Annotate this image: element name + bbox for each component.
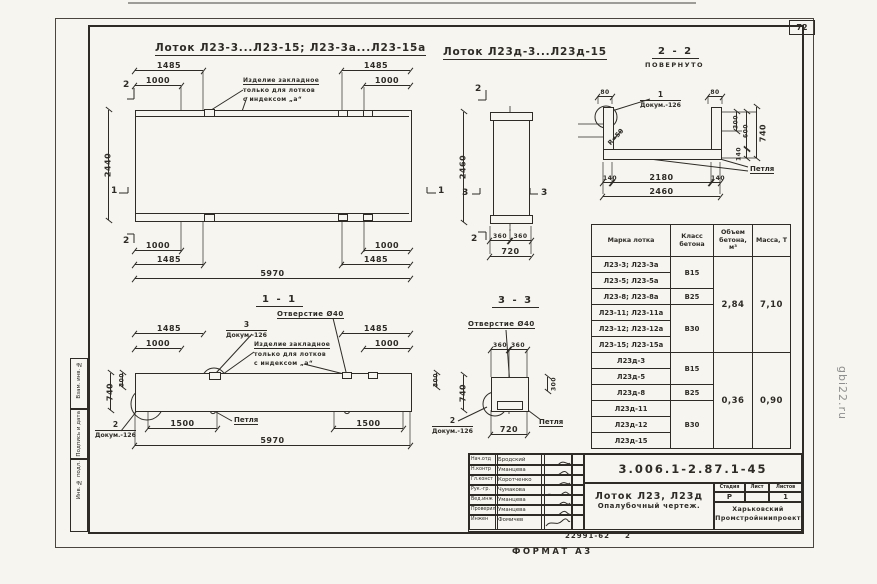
embed-plate [363, 110, 373, 117]
footer-sheet-number: 2 [625, 532, 631, 540]
dim-80: 80 [598, 96, 612, 97]
signer-role: Инжен [469, 514, 498, 530]
dim-1000: 1000 [364, 348, 410, 349]
dim-2180: 2180 [612, 182, 711, 183]
dim-360: 360 [509, 349, 527, 350]
callout-2-dokum: 2 Докум.-126 [95, 420, 136, 439]
callout-3-dokum: 3 Докум.-126 [226, 320, 267, 339]
margin-cell-podpis: Подпись и дата [70, 408, 88, 460]
section-2-2-sublabel: ПОВЕРНУТО [645, 61, 704, 69]
dim-300: 300 [436, 373, 437, 387]
sec33-loop-plate [497, 401, 523, 410]
dim-360: 360 [490, 240, 510, 241]
signature-cell [541, 514, 573, 530]
col-header-obyem: Объем бетона, м³ [714, 225, 753, 257]
dim-740: 740 [110, 373, 111, 410]
embed-plate [204, 109, 215, 117]
margin-cell-vzam: Взам. инв. № [70, 358, 88, 410]
section-mark-1: 1 [438, 186, 444, 196]
dim-1485: 1485 [342, 70, 410, 71]
dim-300: 300 [547, 377, 548, 391]
dim-1485: 1485 [342, 333, 410, 334]
dim-5970: 5970 [135, 445, 410, 446]
document-number: 3.006.1-2.87.1-45 [583, 454, 803, 484]
embed-plate [363, 214, 373, 221]
dim-720: 720 [490, 256, 531, 257]
callout-1-dokum: 1 Докум.-126 [640, 90, 681, 109]
dim-140: 140 [711, 182, 720, 183]
organization-cell: Харьковский Промстройниипроект [713, 501, 803, 530]
embed-plate [209, 372, 221, 380]
callout-2-dokum: 2 Докум.-126 [432, 416, 473, 435]
dim-1000: 1000 [364, 85, 410, 86]
product-subtitle: Опалубочный чертеж. [584, 502, 714, 510]
page-number-box: 72 [789, 20, 815, 35]
dim-360: 360 [510, 240, 531, 241]
scanned-drawing-page: { "page": { "number": "72", "watermark":… [0, 0, 877, 584]
table-row: Л23-3; Л23-3аВ152,847,10 [592, 257, 791, 273]
title-lotok-l23d: Лоток Л23д-3...Л23д-15 [443, 46, 607, 60]
end-view-top-cap [490, 112, 533, 121]
product-name-cell: Лоток Л23, Л23д Опалубочный чертеж. [583, 482, 715, 530]
dim-80: 80 [708, 96, 722, 97]
footer-doc-code: 22991-62 [565, 532, 610, 540]
section-mark-2: 2 [475, 84, 481, 94]
margin-cell-inv: Инв. № подл. [70, 458, 88, 532]
dim-600: 600 [746, 112, 747, 149]
section-mark-2: 2 [123, 236, 129, 246]
dim-1000: 1000 [364, 250, 410, 251]
dim-720: 720 [491, 434, 527, 435]
section-2-2-label: 2 - 2 [652, 46, 699, 59]
embed-plate [342, 372, 352, 379]
embed-plate [338, 214, 348, 221]
dim-2460: 2460 [603, 196, 720, 197]
embed-plate [368, 372, 378, 379]
end-view-bottom-cap [490, 215, 533, 224]
page-number: 72 [796, 23, 807, 32]
organization-line1: Харьковский [714, 505, 802, 514]
dim-5970: 5970 [135, 278, 410, 279]
section-mark-3: 3 [541, 188, 547, 198]
col-header-marka: Марка лотка [592, 225, 671, 257]
watermark-text: gbi22.ru [836, 366, 849, 420]
dim-1485: 1485 [135, 70, 203, 71]
table-header-row: Марка лотка Класс бетона Объем бетона, м… [592, 225, 791, 257]
dim-740: 740 [463, 375, 464, 410]
title-block: Нач.отд Бродский Н.контр Уманцева Гл.кон… [468, 453, 802, 532]
dim-1500: 1500 [148, 428, 217, 429]
section-mark-1: 1 [111, 186, 117, 196]
section-3-3-label: 3 - 3 [492, 295, 539, 308]
format-label: ФОРМАТ А3 [512, 547, 593, 557]
loop-label: Петля [539, 418, 563, 427]
loop-label: Петля [750, 165, 774, 174]
embed-plate [338, 110, 348, 117]
embed-note-2: Изделие закладное только для лотков с ин… [254, 340, 330, 369]
section-1-1-label: 1 - 1 [256, 294, 303, 307]
dim-1500: 1500 [334, 428, 403, 429]
dim-300: 300 [736, 112, 737, 131]
hole-label: Отверстие Ø40 [468, 320, 535, 329]
plan-view-body [135, 110, 412, 222]
dim-1000: 1000 [135, 348, 181, 349]
dim-2460: 2460 [463, 112, 464, 222]
dim-300: 300 [122, 373, 123, 387]
section-mark-2: 2 [471, 234, 477, 244]
dim-1485: 1485 [135, 264, 203, 265]
organization-line2: Промстройниипроект [714, 514, 802, 523]
embed-plate [204, 214, 215, 222]
embed-note: Изделие закладное только для лотков с ин… [243, 76, 319, 105]
dim-740: 740 [756, 107, 757, 158]
dim-1485: 1485 [135, 333, 203, 334]
end-view-body [493, 112, 530, 224]
table-row: Л23д-3В150,360,90 [592, 353, 791, 369]
section-mark-2: 2 [123, 80, 129, 90]
scan-edge-artifact [128, 2, 696, 4]
hole-label: Отверстие Ø40 [277, 310, 344, 319]
loop-label: Петля [234, 416, 258, 425]
dim-2440: 2440 [108, 110, 109, 220]
col-header-massa: Масса, Т [753, 225, 791, 257]
sec22-bottom-slab [603, 149, 722, 160]
spec-table: Марка лотка Класс бетона Объем бетона, м… [591, 224, 791, 449]
dim-1000: 1000 [135, 85, 181, 86]
col-header-klass: Класс бетона [671, 225, 714, 257]
signer-name: Фомичев [495, 514, 545, 530]
dim-1000: 1000 [135, 250, 181, 251]
section-mark-3: 3 [462, 188, 468, 198]
dim-1485: 1485 [342, 264, 410, 265]
title-lotok-l23: Лоток Л23-3...Л23-15; Л23-3а...Л23-15а [155, 42, 426, 56]
product-name: Лоток Л23, Л23д [584, 491, 714, 502]
dim-140: 140 [746, 149, 747, 158]
